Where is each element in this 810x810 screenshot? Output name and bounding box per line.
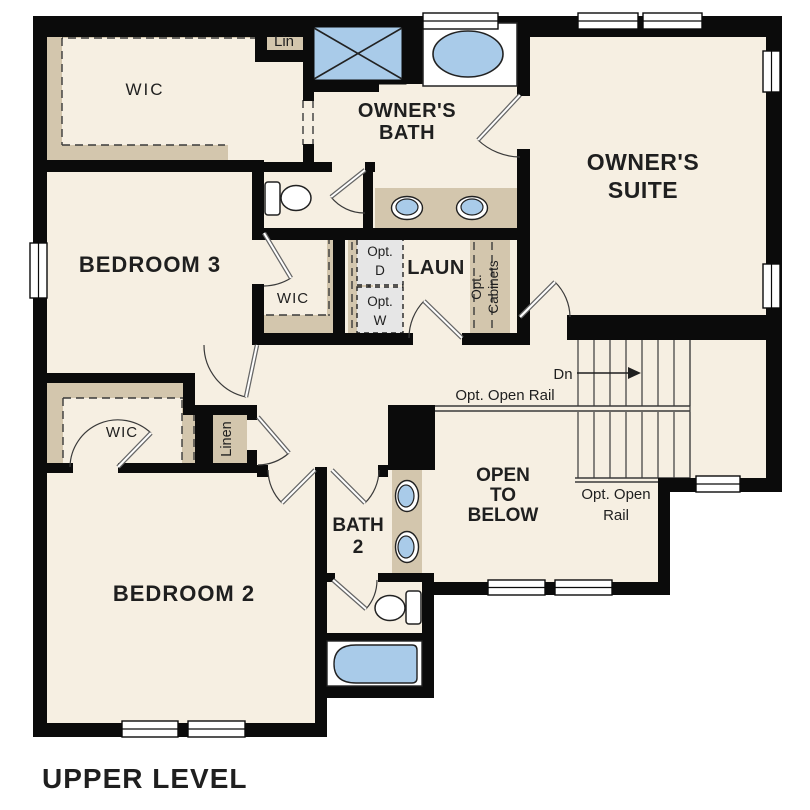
- bath2-sink-basin: [398, 485, 414, 507]
- owner-wic-shelf-left: [47, 38, 62, 160]
- room-label-open-to-below-line-3: BELOW: [468, 505, 539, 526]
- room-label-linen: Linen: [219, 421, 235, 456]
- wall: [118, 463, 257, 473]
- plan-title: UPPER LEVEL: [42, 763, 247, 794]
- bath2-toilet-tank: [406, 591, 421, 624]
- wall: [658, 478, 670, 595]
- label-opt-cabinets-line-2: Cabinets: [486, 260, 501, 314]
- owner-wic-shelf-bottom: [47, 145, 228, 160]
- room-label-open-to-below-line-1: OPEN: [476, 465, 530, 486]
- room-label-bath-2-line-1: BATH: [332, 515, 383, 536]
- bath2-sink-basin: [398, 536, 414, 558]
- room-label-open-to-below-line-2: TO: [490, 485, 516, 506]
- wall: [33, 160, 264, 172]
- label-opt-cabinets-line-1: Opt.: [469, 274, 484, 300]
- bath2-bathtub: [334, 645, 417, 683]
- label-stairs-down: Dn: [553, 366, 572, 383]
- room-label-owners-suite-line-2: SUITE: [608, 177, 678, 203]
- wall: [322, 686, 434, 698]
- wall: [255, 50, 303, 62]
- wall: [404, 16, 423, 84]
- owner-bathtub: [433, 31, 503, 77]
- wall: [315, 467, 327, 723]
- wall: [567, 315, 770, 340]
- wall: [378, 573, 434, 582]
- bed2-wic-shelf-top: [47, 381, 193, 398]
- room-label-bath-2-line-2: 2: [353, 537, 364, 558]
- wall: [333, 240, 345, 345]
- room-label-owners-bath-line-2: BATH: [379, 122, 435, 144]
- room-label-owner-wic: WIC: [125, 80, 164, 99]
- owner-sink-basin: [396, 199, 418, 215]
- label-opt-dryer-line-1: Opt.: [367, 244, 393, 259]
- room-label-bedroom-2: BEDROOM 2: [113, 581, 255, 606]
- room-label-owners-suite-line-1: OWNER'S: [587, 149, 699, 175]
- label-opt-open-rail-side-line-1: Opt. Open: [581, 486, 650, 503]
- wall: [252, 228, 520, 240]
- wall: [517, 16, 530, 96]
- label-opt-washer-line-1: Opt.: [367, 294, 393, 309]
- wall: [33, 723, 327, 737]
- wall: [257, 465, 268, 477]
- label-opt-open-rail-side-line-2: Rail: [603, 507, 629, 524]
- wall: [422, 582, 670, 595]
- wall: [33, 373, 193, 383]
- room-label-bedroom-3: BEDROOM 3: [79, 252, 221, 277]
- wall: [388, 405, 435, 470]
- room-label-owners-bath-line-1: OWNER'S: [358, 100, 456, 122]
- floor-plan-page: WICLinOWNER'SBATHOWNER'SSUITEBEDROOM 3WI…: [0, 0, 810, 810]
- wall: [327, 633, 434, 641]
- wall: [252, 162, 332, 172]
- wall: [365, 162, 375, 172]
- floor-plan-canvas: WICLinOWNER'SBATHOWNER'SSUITEBEDROOM 3WI…: [0, 0, 810, 810]
- room-label-bed3-wic: WIC: [277, 290, 309, 307]
- wall: [247, 405, 257, 420]
- bath2-toilet-bowl: [375, 596, 405, 621]
- room-label-lin: Lin: [274, 33, 294, 50]
- bed2-wic-shelf-left: [47, 398, 63, 465]
- wall: [247, 450, 257, 473]
- label-opt-washer-line-2: W: [374, 313, 387, 328]
- wall: [253, 333, 413, 345]
- room-label-bed2-wic: WIC: [106, 424, 138, 441]
- owner-toilet-bowl: [281, 186, 311, 211]
- wall: [363, 172, 373, 230]
- owner-sink-basin: [461, 199, 483, 215]
- wall: [195, 405, 213, 473]
- owner-toilet-tank: [265, 182, 280, 215]
- wall: [33, 463, 73, 473]
- room-label-laundry: LAUN: [407, 257, 465, 279]
- bed3-wic-shelf-bottom: [264, 315, 345, 333]
- wall: [462, 333, 517, 345]
- label-opt-open-rail-top: Opt. Open Rail: [455, 387, 554, 404]
- wall: [252, 172, 264, 234]
- label-opt-dryer-line-2: D: [375, 263, 385, 278]
